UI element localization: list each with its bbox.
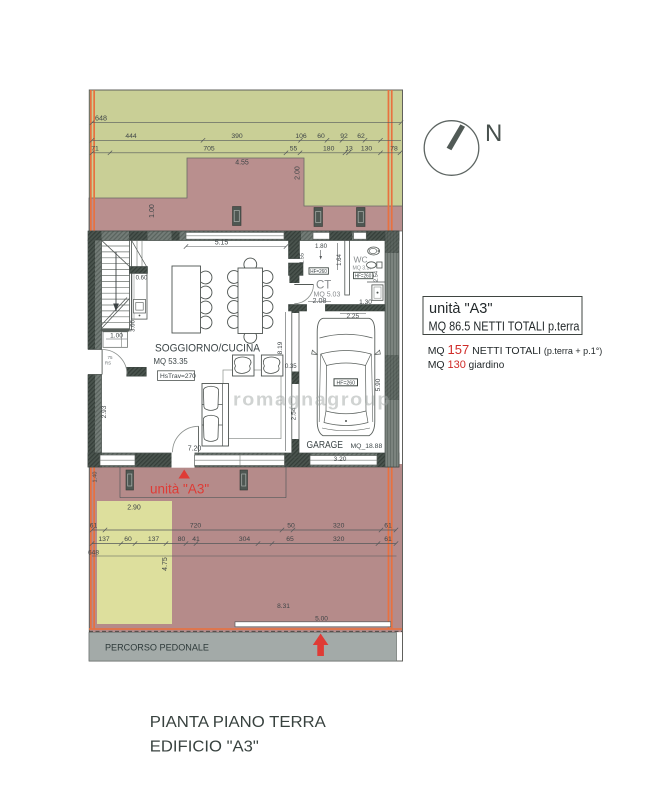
- svg-text:HF=260: HF=260: [337, 380, 356, 386]
- svg-text:HF=260: HF=260: [355, 273, 372, 279]
- svg-text:304: 304: [239, 536, 251, 543]
- svg-text:1.55: 1.55: [299, 253, 305, 264]
- svg-text:HsTrav=270: HsTrav=270: [160, 373, 196, 380]
- svg-text:8.19: 8.19: [277, 341, 284, 354]
- svg-text:2.93: 2.93: [101, 405, 108, 418]
- svg-text:648: 648: [88, 550, 99, 557]
- svg-text:PIANTA PIANO TERRA: PIANTA PIANO TERRA: [150, 714, 327, 731]
- svg-text:705: 705: [203, 145, 215, 152]
- svg-text:4.55: 4.55: [235, 160, 249, 167]
- svg-text:65: 65: [286, 536, 294, 543]
- svg-text:130: 130: [361, 145, 373, 152]
- svg-text:3.66: 3.66: [131, 320, 137, 332]
- svg-text:CT: CT: [316, 280, 331, 292]
- svg-text:92: 92: [340, 133, 348, 140]
- svg-text:320: 320: [333, 523, 345, 530]
- svg-text:2.08: 2.08: [313, 296, 327, 305]
- svg-text:WC: WC: [354, 255, 368, 265]
- svg-text:1.30: 1.30: [359, 299, 372, 306]
- svg-text:0.60: 0.60: [136, 276, 148, 282]
- svg-text:41: 41: [192, 536, 200, 543]
- svg-text:romagnagroup: romagnagroup: [233, 389, 391, 410]
- svg-text:50: 50: [287, 523, 295, 530]
- svg-text:MQ 130 giardino: MQ 130 giardino: [428, 359, 505, 371]
- svg-text:SOGGIORNO/CUCINA: SOGGIORNO/CUCINA: [155, 343, 261, 355]
- svg-text:60: 60: [124, 536, 132, 543]
- svg-text:137: 137: [148, 536, 160, 543]
- svg-text:EDIFICIO "A3": EDIFICIO "A3": [150, 739, 259, 756]
- svg-text:106: 106: [295, 133, 307, 140]
- svg-text:MQ_18.88: MQ_18.88: [351, 443, 383, 450]
- svg-text:3.20: 3.20: [334, 456, 347, 463]
- svg-text:7.20: 7.20: [188, 446, 202, 453]
- svg-text:unità "A3": unità "A3": [150, 482, 209, 497]
- svg-text:RS: RS: [105, 361, 111, 366]
- svg-text:1.80: 1.80: [315, 243, 328, 250]
- svg-text:HF=260: HF=260: [310, 269, 327, 275]
- svg-text:2.54: 2.54: [374, 271, 380, 282]
- svg-text:4.75: 4.75: [162, 557, 169, 571]
- svg-text:61: 61: [90, 523, 98, 530]
- svg-text:13: 13: [345, 145, 353, 152]
- svg-text:180: 180: [323, 145, 335, 152]
- svg-text:1.40: 1.40: [93, 472, 99, 483]
- svg-text:61: 61: [384, 536, 392, 543]
- svg-text:75: 75: [107, 355, 113, 360]
- svg-text:1.00: 1.00: [110, 333, 123, 340]
- svg-text:0.35: 0.35: [285, 364, 297, 370]
- svg-text:MQ 53.35: MQ 53.35: [154, 357, 189, 366]
- svg-text:62: 62: [357, 133, 365, 140]
- svg-text:5.15: 5.15: [215, 239, 229, 246]
- svg-text:390: 390: [231, 133, 243, 140]
- svg-text:MQ 86.5 NETTI TOTALI p.terra: MQ 86.5 NETTI TOTALI p.terra: [429, 319, 581, 334]
- svg-text:61: 61: [384, 523, 392, 530]
- svg-text:444: 444: [125, 133, 137, 140]
- svg-text:8.31: 8.31: [277, 603, 290, 610]
- svg-text:2.00: 2.00: [295, 166, 302, 180]
- svg-text:320: 320: [333, 536, 345, 543]
- svg-text:80: 80: [178, 536, 186, 543]
- svg-text:2.90: 2.90: [127, 505, 141, 512]
- svg-text:71: 71: [91, 145, 99, 152]
- svg-text:1.00: 1.00: [149, 204, 156, 218]
- svg-text:55: 55: [290, 145, 298, 152]
- svg-text:N: N: [485, 120, 502, 147]
- svg-text:720: 720: [190, 523, 202, 530]
- svg-text:5.00: 5.00: [315, 615, 328, 622]
- svg-text:unità "A3": unità "A3": [429, 301, 493, 317]
- svg-text:648: 648: [95, 114, 107, 123]
- svg-text:137: 137: [98, 536, 110, 543]
- svg-text:60: 60: [317, 133, 325, 140]
- svg-text:78: 78: [390, 145, 398, 152]
- svg-text:PERCORSO PEDONALE: PERCORSO PEDONALE: [105, 643, 209, 653]
- svg-text:GARAGE: GARAGE: [307, 440, 344, 451]
